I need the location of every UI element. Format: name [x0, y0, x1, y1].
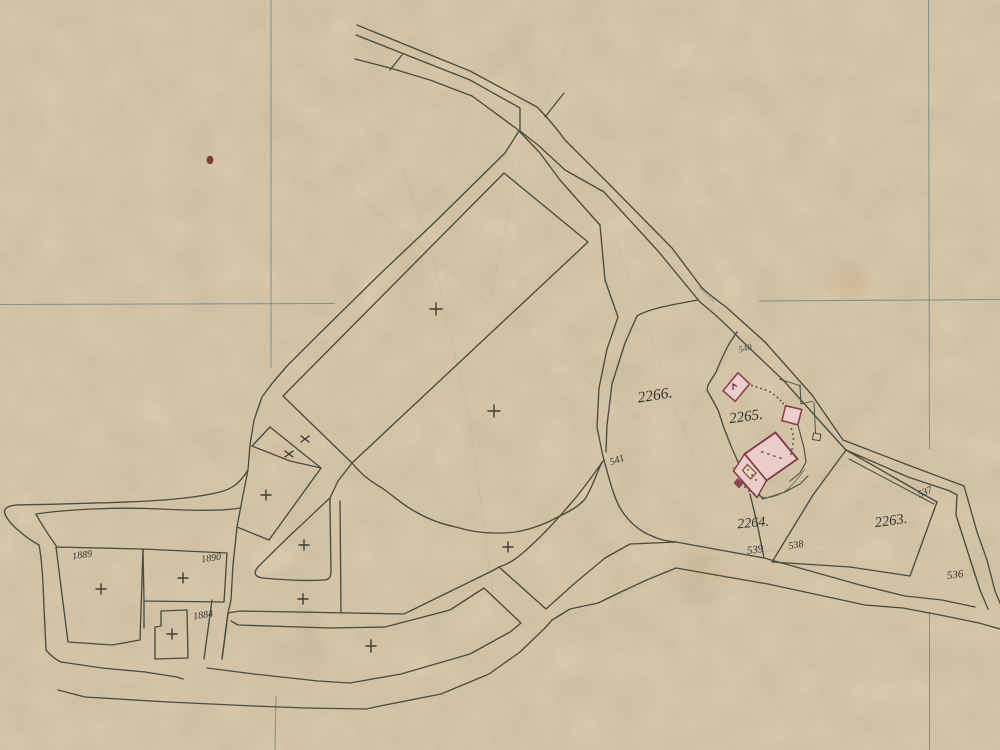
- svg-text:536: 536: [946, 568, 965, 582]
- svg-text:2264.: 2264.: [737, 515, 770, 533]
- svg-text:539: 539: [746, 543, 765, 557]
